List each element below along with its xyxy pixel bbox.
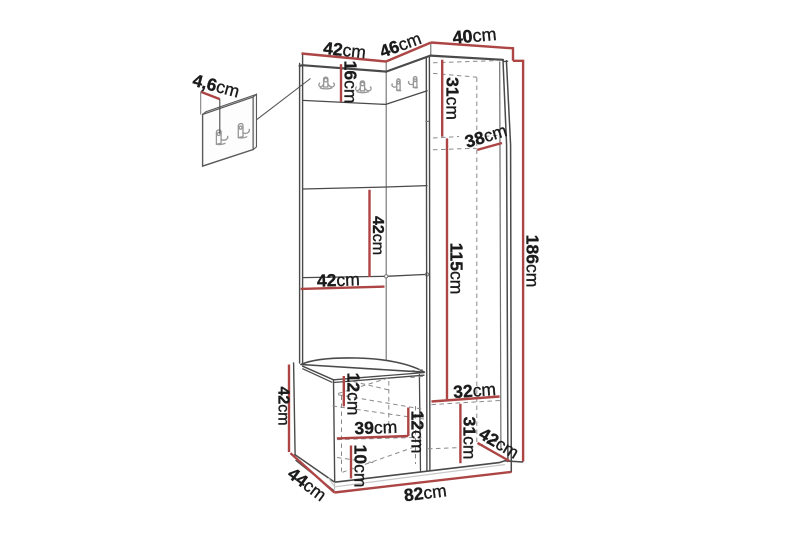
svg-text:39cm: 39cm [354,417,397,438]
svg-text:32cm: 32cm [453,379,497,402]
svg-text:31cm: 31cm [443,77,463,120]
svg-text:10cm: 10cm [351,445,371,488]
svg-text:42cm: 42cm [369,216,386,255]
svg-text:40cm: 40cm [452,24,498,48]
svg-text:186cm: 186cm [523,235,543,288]
svg-text:42cm: 42cm [275,386,292,425]
svg-text:12cm: 12cm [344,373,364,416]
svg-text:12cm: 12cm [408,411,428,454]
svg-text:115cm: 115cm [447,243,467,295]
svg-text:31cm: 31cm [460,417,480,460]
svg-text:16cm: 16cm [341,61,361,104]
svg-text:42cm: 42cm [317,269,360,290]
